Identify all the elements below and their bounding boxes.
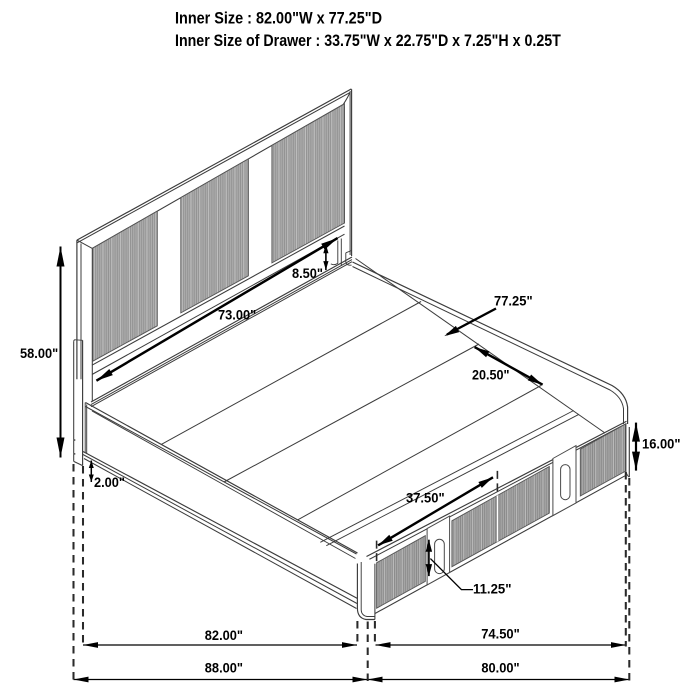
svg-text:20.50": 20.50"	[472, 368, 510, 383]
svg-text:74.50": 74.50"	[481, 627, 520, 642]
svg-text:8.50": 8.50"	[292, 266, 323, 281]
svg-text:77.25": 77.25"	[494, 294, 533, 309]
svg-text:37.50": 37.50"	[406, 491, 445, 506]
svg-text:16.00": 16.00"	[642, 437, 681, 452]
svg-text:Inner Size : 82.00"W x 77.25"D: Inner Size : 82.00"W x 77.25"D	[175, 9, 382, 28]
svg-text:Inner Size of Drawer : 33.75"W: Inner Size of Drawer : 33.75"W x 22.75"D…	[175, 31, 561, 50]
svg-text:2.00": 2.00"	[94, 475, 125, 490]
svg-text:73.00": 73.00"	[218, 308, 256, 323]
svg-text:80.00": 80.00"	[481, 661, 519, 676]
svg-text:88.00": 88.00"	[205, 661, 243, 676]
svg-text:82.00": 82.00"	[205, 628, 243, 643]
svg-text:58.00": 58.00"	[20, 346, 58, 361]
svg-text:11.25": 11.25"	[473, 582, 512, 597]
